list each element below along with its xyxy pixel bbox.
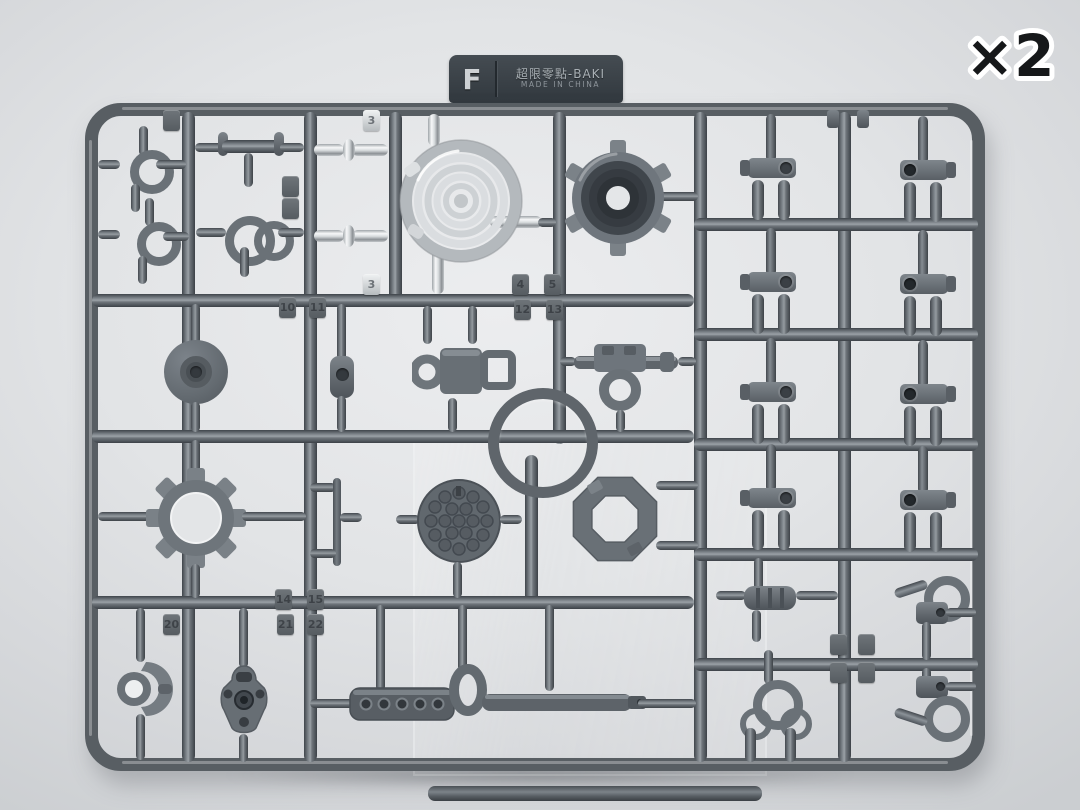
thruster-ring-part [558, 138, 678, 258]
gate-number-tag [830, 634, 847, 655]
runner-horizontal [92, 596, 694, 609]
double-ring-part [254, 221, 294, 261]
joint-nub [946, 162, 956, 178]
hinge-joint-part [892, 384, 956, 450]
gate-number-tag: 21 [277, 614, 294, 635]
chrome-spring-part [398, 138, 524, 264]
gate-number-tag: 3 [363, 110, 380, 131]
gate-twig [138, 256, 147, 284]
block-connector-part [412, 340, 516, 402]
gate-twig [280, 143, 304, 152]
studded-disc-part [416, 478, 502, 564]
gate-twig [766, 114, 776, 162]
gate-number-tag: 11 [309, 297, 326, 318]
gate-number-tag: 22 [307, 614, 324, 635]
hinge-joint-part [892, 160, 956, 226]
gate-twig [239, 734, 248, 762]
gate-number-tag: 4 [512, 274, 529, 295]
gate-twig [196, 228, 226, 237]
ring-head-joint [924, 696, 970, 742]
joint-peg [778, 404, 790, 444]
joint-peg [752, 180, 764, 220]
gate-twig [242, 512, 306, 521]
gate-twig [448, 398, 457, 432]
gate-twig [337, 304, 346, 360]
hinge-joint-part [892, 490, 956, 556]
hinge-joint-part [740, 272, 804, 338]
runner-horizontal [92, 294, 694, 307]
joint-peg [752, 404, 764, 444]
gate-twig [752, 610, 761, 642]
joint-nub [946, 492, 956, 508]
joint-peg [904, 512, 916, 552]
hinge-joint-part [892, 274, 956, 340]
hinge-joint-part [740, 382, 804, 448]
joint-peg [778, 510, 790, 550]
hinge-joint-part [740, 488, 804, 554]
gate-twig [278, 228, 304, 237]
gate-twig [766, 228, 776, 276]
gate-number-tag: 20 [163, 614, 180, 635]
joint-nub [740, 490, 750, 506]
frame-highlight [122, 107, 948, 110]
joint-hole [904, 164, 916, 176]
cylinder-rib [756, 588, 760, 608]
gate-twig [98, 160, 120, 169]
gate-twig [340, 513, 362, 522]
gate-twig [163, 232, 189, 241]
gate-number-tag: 5 [544, 274, 561, 295]
joint-peg [778, 294, 790, 334]
gate-twig [500, 515, 522, 524]
joint-hole [904, 278, 916, 290]
flange-ring-part [110, 660, 174, 720]
gate-twig [458, 605, 467, 671]
gate-number-tag: 15 [307, 589, 324, 610]
cylinder-joint-hole [336, 368, 349, 381]
quantity-multiplier: ×2 [945, 12, 1075, 97]
gate-twig [796, 591, 838, 600]
joint-peg [752, 510, 764, 550]
chrome-joint-ball [343, 225, 355, 247]
gate-twig [638, 699, 696, 708]
gate-twig [918, 230, 928, 278]
gate-twig [131, 184, 140, 212]
cross-plate-part [218, 664, 270, 736]
frame-highlight [122, 761, 948, 764]
gate-twig [244, 153, 253, 187]
joint-nub [946, 276, 956, 292]
photo-canvas: F 超限零點-BAKI MADE IN CHINA [0, 0, 1080, 810]
gate-twig [191, 304, 200, 344]
joint-hole [780, 276, 792, 288]
frame-nub [857, 110, 869, 128]
joint-peg [930, 512, 942, 552]
label-text-block: 超限零點-BAKI MADE IN CHINA [498, 68, 623, 89]
joint-peg [930, 296, 942, 336]
joint-hole [904, 494, 916, 506]
octagon-ring-part [568, 472, 662, 566]
gate-number-tag: 13 [546, 299, 563, 320]
joint-hole [936, 682, 945, 691]
gate-twig [922, 622, 931, 660]
gate-number-tag [830, 662, 847, 683]
gate-number-tag: 14 [275, 589, 292, 610]
gate-twig [918, 116, 928, 164]
cylinder-rib [780, 588, 784, 608]
spare-runner-bar [428, 786, 762, 801]
joint-peg [904, 406, 916, 446]
gate-number-tag: 12 [514, 299, 531, 320]
joint-peg [778, 180, 790, 220]
gate-twig [240, 247, 249, 277]
gate-number-tag [282, 176, 299, 197]
gate-twig [98, 230, 120, 239]
svg-text:×2: ×2 [966, 22, 1055, 90]
gate-twig [918, 340, 928, 388]
chrome-joint-ball [343, 139, 355, 161]
gate-number-tag [858, 662, 875, 683]
joint-hole [904, 388, 916, 400]
gate-number-tag [282, 198, 299, 219]
gate-twig [766, 444, 776, 492]
origin-text: MADE IN CHINA [498, 81, 623, 89]
chrome-rod-part [352, 144, 388, 156]
t-pipe-ring-part [572, 342, 684, 414]
gate-twig [656, 541, 698, 550]
gate-number-tag: 10 [279, 297, 296, 318]
gate-twig [191, 402, 200, 432]
cylinder-rib [768, 588, 772, 608]
disc-cap-hole [190, 366, 202, 378]
gate-twig [656, 481, 698, 490]
gate-twig [716, 591, 746, 600]
gate-twig [453, 562, 462, 598]
joint-hole [780, 492, 792, 504]
gate-number-tag: 3 [363, 274, 380, 295]
rail-weapon-part [348, 664, 648, 726]
joint-peg [930, 406, 942, 446]
joint-peg [745, 728, 756, 762]
gate-twig [136, 714, 145, 760]
gate-twig [156, 160, 186, 169]
gate-twig [191, 564, 200, 598]
gate-twig [766, 338, 776, 386]
chrome-rod-part [352, 230, 388, 242]
gate-twig [616, 410, 625, 432]
gate-twig [337, 396, 346, 432]
hinge-joint-part [740, 158, 804, 224]
gate-twig [764, 650, 773, 684]
joint-peg [904, 182, 916, 222]
gate-twig [946, 682, 976, 691]
gate-twig [946, 608, 976, 617]
runner-letter: F [449, 63, 495, 96]
gate-twig [423, 306, 432, 344]
t-bar-part [222, 140, 280, 153]
gate-number-tag [163, 110, 180, 131]
joint-hole [936, 608, 945, 617]
joint-nub [946, 386, 956, 402]
joint-nub [740, 160, 750, 176]
runner-label-tab: F 超限零點-BAKI MADE IN CHINA [449, 55, 623, 103]
joint-nub [740, 274, 750, 290]
gate-twig [678, 357, 696, 366]
gate-number-tag [858, 634, 875, 655]
crown-gear-part [146, 468, 246, 568]
frame-nub [827, 110, 839, 128]
gate-twig [239, 608, 248, 668]
joint-hole [780, 386, 792, 398]
chrome-rod-part [314, 230, 344, 242]
joint-hole [780, 162, 792, 174]
gate-twig [918, 446, 928, 494]
gate-twig [98, 512, 150, 521]
joint-peg [904, 296, 916, 336]
joint-peg [752, 294, 764, 334]
gate-twig [310, 549, 336, 558]
joint-peg [785, 728, 796, 762]
joint-peg [930, 182, 942, 222]
joint-nub [740, 384, 750, 400]
runner-horizontal [92, 430, 694, 443]
gate-twig [136, 608, 145, 662]
gate-twig [468, 306, 477, 344]
chrome-rod-part [314, 144, 344, 156]
gate-twig [538, 218, 556, 227]
